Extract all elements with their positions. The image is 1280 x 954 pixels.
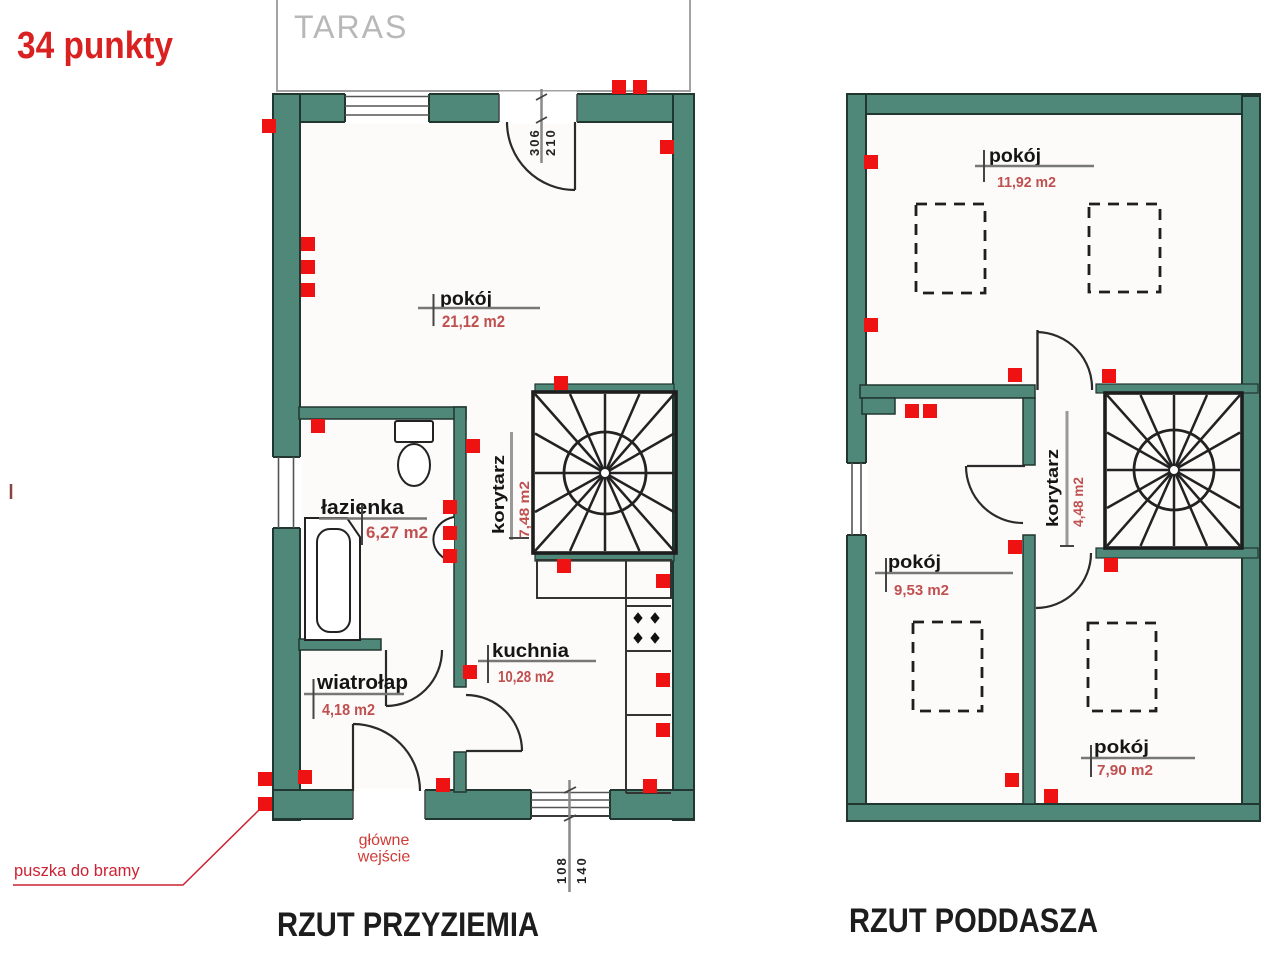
- svg-text:34 punkty: 34 punkty: [17, 25, 173, 67]
- svg-text:korytarz: korytarz: [1043, 449, 1062, 527]
- svg-text:pokój: pokój: [888, 552, 941, 572]
- svg-text:7,48 m2: 7,48 m2: [517, 481, 532, 538]
- svg-text:pokój: pokój: [989, 146, 1041, 167]
- svg-text:140: 140: [574, 856, 589, 884]
- svg-text:10,28 m2: 10,28 m2: [498, 669, 554, 686]
- svg-text:4,18 m2: 4,18 m2: [322, 702, 375, 719]
- svg-text:wejście: wejście: [357, 849, 411, 866]
- svg-text:korytarz: korytarz: [489, 455, 508, 534]
- svg-text:108: 108: [554, 856, 569, 884]
- svg-text:puszka do bramy: puszka do bramy: [14, 862, 140, 880]
- svg-text:7,90 m2: 7,90 m2: [1097, 763, 1153, 779]
- svg-text:210: 210: [543, 128, 558, 156]
- svg-text:21,12 m2: 21,12 m2: [442, 313, 505, 331]
- svg-text:TARAS: TARAS: [294, 9, 408, 45]
- svg-text:pokój: pokój: [1094, 737, 1149, 757]
- svg-text:4,48 m2: 4,48 m2: [1071, 477, 1086, 527]
- svg-text:11,92 m2: 11,92 m2: [997, 174, 1056, 191]
- svg-text:306: 306: [527, 128, 542, 156]
- svg-text:RZUT PODDASZA: RZUT PODDASZA: [849, 902, 1098, 940]
- svg-text:wiatrołap: wiatrołap: [316, 672, 408, 694]
- svg-text:kuchnia: kuchnia: [492, 641, 569, 662]
- svg-text:główne: główne: [359, 832, 410, 849]
- svg-text:6,27 m2: 6,27 m2: [366, 523, 428, 542]
- svg-text:RZUT PRZYZIEMIA: RZUT PRZYZIEMIA: [277, 906, 539, 944]
- svg-text:9,53 m2: 9,53 m2: [894, 583, 949, 599]
